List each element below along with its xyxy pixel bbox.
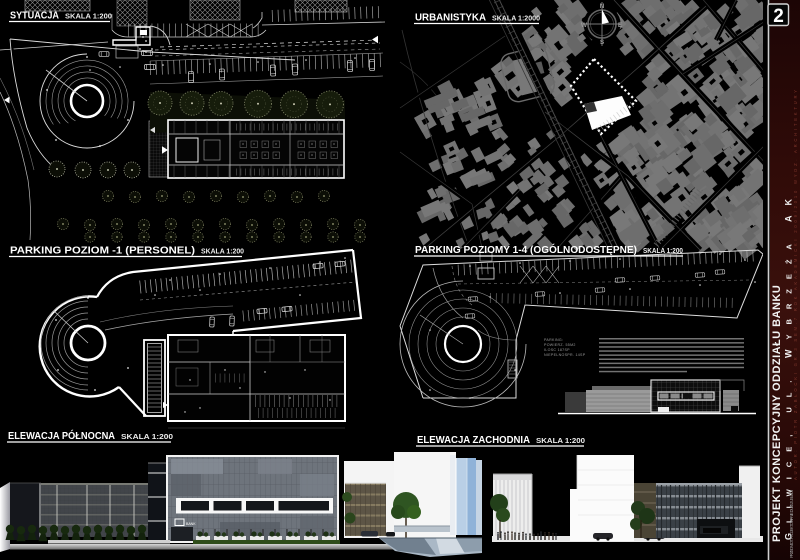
svg-text:SKALA 1:200: SKALA 1:200 <box>536 438 585 445</box>
svg-text:N: N <box>600 3 605 10</box>
svg-text:ELEWACJA PÓŁNOCNA: ELEWACJA PÓŁNOCNA <box>8 429 115 442</box>
svg-text:URBANISTYKA: URBANISTYKA <box>415 13 486 24</box>
svg-text:PARKING POZIOMY 1-4 (OGÓLNODOS: PARKING POZIOMY 1-4 (OGÓLNODOSTĘPNE) <box>415 243 637 256</box>
svg-text:SKALA 1:200: SKALA 1:200 <box>643 248 683 255</box>
svg-text:POWIERZ. 55M2: POWIERZ. 55M2 <box>544 343 576 347</box>
svg-text:PROJEKT KONCEPCYJNY ODDZIAŁU B: PROJEKT KONCEPCYJNY ODDZIAŁU BANKU <box>771 285 783 542</box>
svg-text:2: 2 <box>773 6 784 27</box>
svg-text:NIEPELNOSPR. 14SP: NIEPELNOSPR. 14SP <box>544 353 586 357</box>
svg-text:PRZEDMIOT: PROJEKTOWANIE DUŻEJ: PRZEDMIOT: PROJEKTOWANIE DUŻEJ USŁUGI <box>789 490 794 558</box>
svg-text:SYTUACJA: SYTUACJA <box>10 11 59 22</box>
svg-text:SKALA 1:2000: SKALA 1:2000 <box>492 16 540 23</box>
svg-text:S: S <box>600 39 605 46</box>
svg-text:AUTOR: PIOTR ZABŁOCKI GR.3 SEM: AUTOR: PIOTR ZABŁOCKI GR.3 SEM.7 ROK AKA… <box>793 90 798 480</box>
svg-text:SKALA 1:200: SKALA 1:200 <box>201 249 244 256</box>
svg-text:SKALA 1:200: SKALA 1:200 <box>121 434 173 441</box>
svg-text:ELEWACJA ZACHODNIA: ELEWACJA ZACHODNIA <box>417 435 530 446</box>
svg-text:ILOSC 187SP: ILOSC 187SP <box>544 348 570 352</box>
svg-text:SKALA 1:200: SKALA 1:200 <box>65 14 112 21</box>
svg-text:E: E <box>618 22 623 29</box>
svg-text:W: W <box>581 22 588 29</box>
svg-text:BANK: BANK <box>186 522 196 526</box>
svg-text:PARKING:: PARKING: <box>544 338 563 342</box>
svg-text:PARKING POZIOM -1 (PERSONEL): PARKING POZIOM -1 (PERSONEL) <box>10 246 195 257</box>
